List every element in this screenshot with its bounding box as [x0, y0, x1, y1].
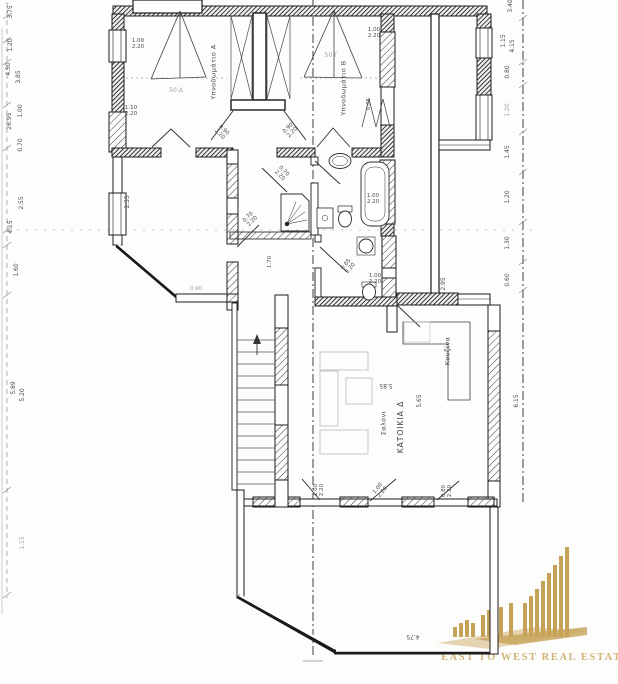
wc-sink: [359, 239, 373, 253]
kitchen-counter: [403, 322, 470, 400]
toilet: [339, 211, 352, 227]
section-lines: [3, 0, 532, 661]
stairs: [237, 334, 275, 484]
floor-plan-scan: EAST TO WEST REAL ESTATE: [0, 0, 618, 684]
fixtures-layer: [281, 154, 389, 301]
wc-toilet: [363, 284, 376, 300]
floor-plan-drawing: [0, 0, 618, 684]
walls-layer: [109, 0, 500, 654]
sofa-outline: [320, 352, 372, 454]
shower: [281, 194, 309, 231]
doors-layer: [152, 111, 459, 501]
furniture-layer: [320, 322, 470, 454]
